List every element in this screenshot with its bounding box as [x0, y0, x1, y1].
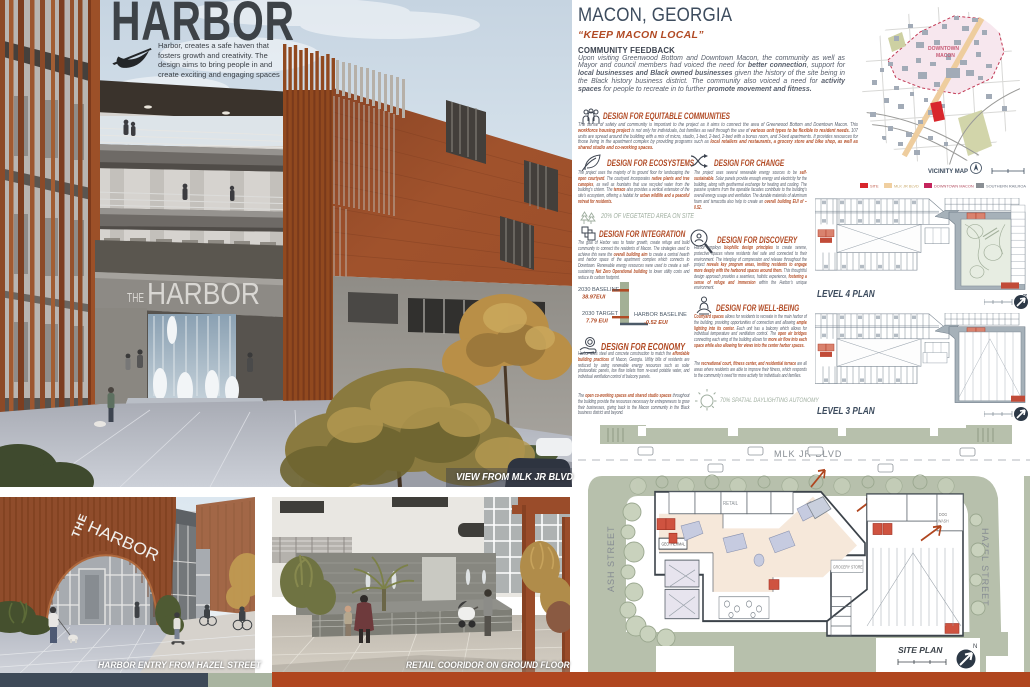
svg-text:7.79 EUI: 7.79 EUI [586, 319, 608, 325]
svg-text:-0.52 EUI: -0.52 EUI [644, 320, 668, 326]
svg-text:HARBOR BASELINE: HARBOR BASELINE [634, 312, 687, 318]
svg-text:38.97EUI: 38.97EUI [582, 295, 606, 301]
svg-text:SITE: SITE [870, 184, 879, 189]
svg-text:MACON: MACON [936, 53, 955, 59]
svg-text:2030 BASELINE: 2030 BASELINE [578, 287, 620, 293]
svg-text:MLK JR BLVD: MLK JR BLVD [894, 184, 919, 189]
svg-text:VICINITY MAP: VICINITY MAP [928, 168, 969, 175]
svg-text:DOWNTOWN MACON: DOWNTOWN MACON [934, 184, 974, 189]
svg-text:2030 TARGET: 2030 TARGET [582, 311, 619, 317]
svg-text:DOWNTOWN: DOWNTOWN [928, 46, 959, 52]
svg-text:N: N [1021, 294, 1027, 298]
svg-text:SOUTHERN RAILROAD: SOUTHERN RAILROAD [986, 184, 1026, 189]
